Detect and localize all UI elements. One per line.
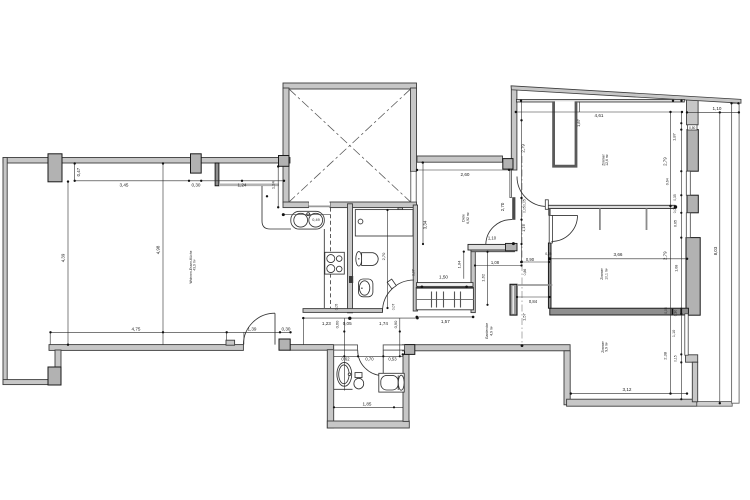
svg-text:0,70: 0,70 [365, 356, 374, 361]
svg-text:0,90: 0,90 [526, 257, 535, 262]
svg-text:1,10: 1,10 [713, 106, 722, 111]
svg-text:0,05: 0,05 [522, 199, 526, 206]
svg-text:4,75: 4,75 [132, 326, 141, 331]
svg-text:1,85: 1,85 [363, 401, 372, 406]
svg-text:1,87: 1,87 [576, 118, 581, 127]
svg-text:0,49: 0,49 [312, 218, 319, 222]
svg-text:0,05: 0,05 [343, 321, 352, 326]
svg-text:3,12: 3,12 [623, 387, 632, 392]
svg-text:0,35: 0,35 [673, 194, 677, 201]
svg-text:0,84: 0,84 [529, 299, 538, 304]
svg-text:1,57: 1,57 [441, 319, 450, 324]
svg-text:2,38: 2,38 [663, 351, 668, 360]
svg-text:0,07: 0,07 [412, 269, 416, 276]
svg-text:8,03: 8,03 [713, 246, 718, 255]
svg-text:10,1 m²: 10,1 m² [605, 267, 609, 279]
svg-text:1,23: 1,23 [322, 321, 331, 326]
svg-text:1,24: 1,24 [238, 182, 247, 187]
svg-text:2,70: 2,70 [381, 252, 386, 261]
svg-text:1,62: 1,62 [480, 273, 485, 282]
svg-text:Diele: Diele [462, 214, 466, 222]
svg-text:1,50: 1,50 [439, 275, 448, 280]
svg-text:1,24: 1,24 [270, 181, 275, 190]
svg-text:43,9 m²: 43,9 m² [193, 259, 197, 271]
svg-text:1,08: 1,08 [491, 260, 500, 265]
svg-text:1,39: 1,39 [248, 326, 257, 331]
svg-text:0,05: 0,05 [522, 206, 526, 213]
svg-text:4,98: 4,98 [156, 245, 161, 254]
svg-text:0,30: 0,30 [192, 182, 201, 187]
svg-text:0,05: 0,05 [335, 304, 339, 311]
svg-text:0,05: 0,05 [673, 207, 677, 214]
svg-text:0,47: 0,47 [76, 167, 81, 176]
svg-text:0,65: 0,65 [673, 220, 677, 227]
svg-text:0,05: 0,05 [664, 307, 668, 314]
svg-text:Garderobe: Garderobe [485, 323, 489, 339]
svg-text:3,34: 3,34 [423, 220, 428, 229]
svg-text:0,62: 0,62 [341, 356, 350, 361]
svg-text:0,15: 0,15 [673, 355, 677, 362]
svg-text:0,05: 0,05 [545, 252, 552, 256]
svg-text:12,6 m²: 12,6 m² [605, 153, 609, 165]
svg-text:2,79: 2,79 [521, 144, 526, 153]
svg-text:1,10: 1,10 [488, 236, 497, 241]
svg-text:Zimmer: Zimmer [600, 267, 604, 279]
svg-text:3,45: 3,45 [120, 182, 129, 187]
svg-text:0,90: 0,90 [673, 310, 677, 317]
svg-text:1,08: 1,08 [675, 265, 679, 272]
svg-text:4,39: 4,39 [61, 253, 66, 262]
svg-text:1,04: 1,04 [456, 260, 461, 269]
svg-text:0,50: 0,50 [689, 126, 695, 130]
svg-text:6,92 m²: 6,92 m² [466, 211, 470, 223]
svg-text:2,70: 2,70 [500, 202, 505, 211]
svg-text:1,74: 1,74 [379, 321, 388, 326]
svg-text:1,87: 1,87 [672, 132, 677, 141]
svg-text:9,9 m²: 9,9 m² [605, 341, 609, 351]
svg-text:0,86: 0,86 [523, 269, 527, 276]
svg-text:3,66: 3,66 [614, 252, 623, 257]
svg-text:2,79: 2,79 [663, 157, 668, 166]
svg-text:0,90: 0,90 [393, 320, 398, 329]
svg-text:1,10: 1,10 [672, 330, 676, 337]
svg-text:0,30: 0,30 [282, 326, 291, 331]
svg-text:1,57: 1,57 [522, 312, 527, 321]
svg-text:2,79: 2,79 [663, 251, 668, 260]
svg-text:2,60: 2,60 [461, 172, 470, 177]
svg-text:0,53: 0,53 [388, 356, 397, 361]
svg-text:0,60: 0,60 [335, 320, 340, 329]
svg-text:0,07: 0,07 [392, 304, 396, 311]
svg-text:4,61: 4,61 [595, 113, 604, 118]
svg-text:0,64: 0,64 [665, 178, 669, 185]
svg-text:4,9 m²: 4,9 m² [490, 325, 494, 335]
svg-text:1,16: 1,16 [521, 223, 526, 232]
